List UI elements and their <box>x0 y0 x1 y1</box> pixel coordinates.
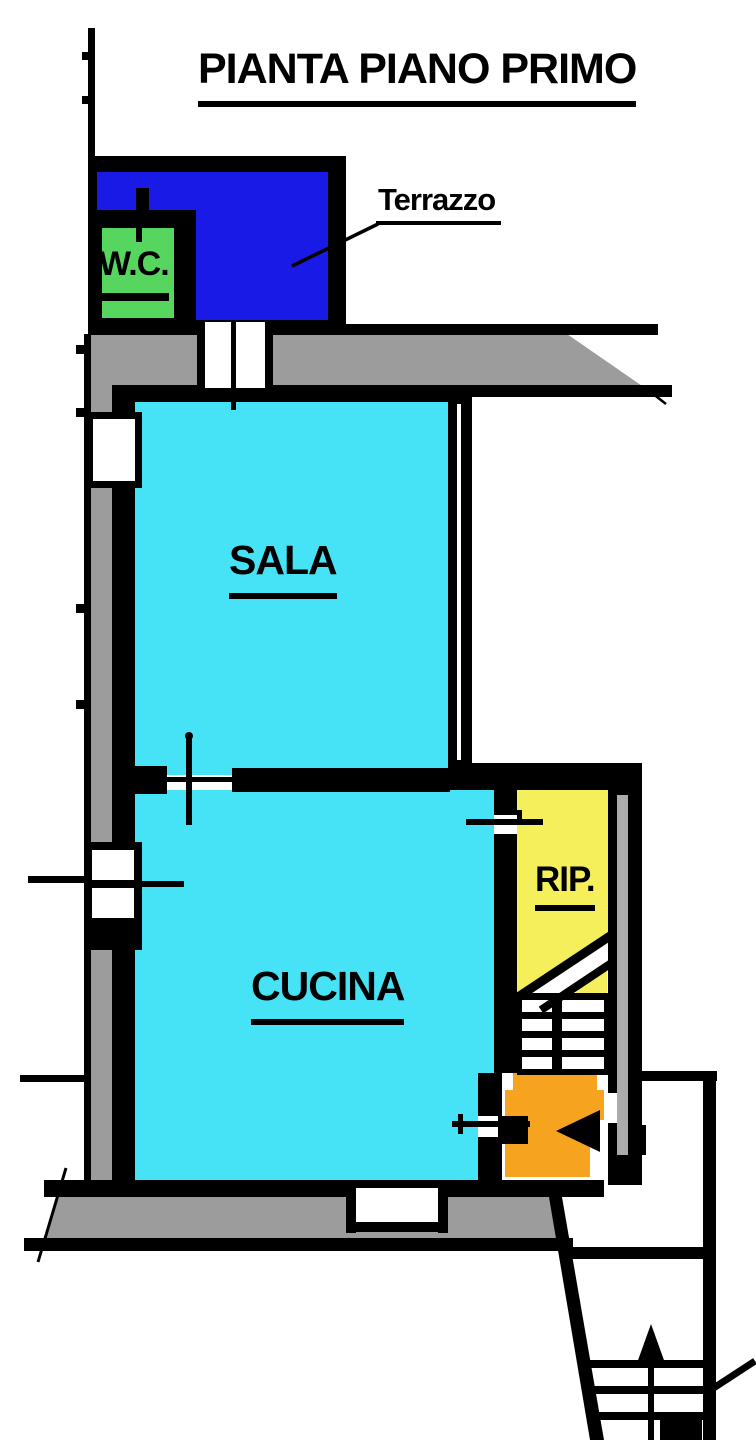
stair-step <box>562 1038 604 1050</box>
cucina-label: CUCINA <box>251 966 404 1025</box>
boundary-line-bottom <box>24 1238 573 1251</box>
stair-step-line <box>590 1360 703 1368</box>
terrazzo-label: Terrazzo <box>376 184 501 225</box>
door-frame <box>197 322 205 392</box>
left-dimension-line <box>20 1075 84 1082</box>
wall-tick <box>76 604 84 613</box>
partition-wall <box>232 768 450 792</box>
door-frame <box>265 322 273 392</box>
external-wall-slanted <box>549 1197 604 1440</box>
stair-step <box>562 1057 604 1069</box>
sala-right-wall-gap <box>457 404 461 760</box>
landing-notch <box>498 1116 528 1144</box>
stair-landing-block <box>660 1417 702 1440</box>
stair-step-line <box>594 1386 703 1394</box>
door-threshold <box>346 1222 448 1232</box>
wc-wall-right <box>174 210 196 334</box>
external-stairs <box>590 1324 703 1440</box>
corridor-masonry <box>96 334 648 390</box>
corridor-wall-top <box>88 324 658 335</box>
bottom-band-masonry <box>44 1197 568 1245</box>
rip-wall-left <box>494 763 517 1073</box>
floor-plan: PIANTA PIANO PRIMO Terrazzo W.C. SALA CU… <box>0 0 756 1440</box>
external-wall-mid-line <box>560 1247 710 1259</box>
door-hinge <box>185 732 193 740</box>
door-tick <box>458 1114 463 1134</box>
wc-wall-notch <box>136 188 149 212</box>
window-sill-line-right <box>142 881 184 887</box>
external-wall-top-line <box>640 1071 717 1081</box>
wc-wall-tick <box>136 228 142 242</box>
wall-tick <box>76 700 84 709</box>
wc-label: W.C. <box>99 247 169 301</box>
partition-stub <box>112 766 167 794</box>
bottom-door-opening <box>356 1188 438 1224</box>
boundary-line-top-left <box>88 28 95 160</box>
wall-tick <box>76 408 84 417</box>
wall-tick <box>82 52 88 60</box>
stair-wall-masonry-strip <box>617 795 628 1155</box>
door-leaf-symbol <box>231 322 236 410</box>
cucina-window-pane <box>92 888 134 918</box>
stair-step <box>562 1000 604 1012</box>
sala-wall-top <box>112 385 472 402</box>
stair-step <box>522 1057 552 1069</box>
wall-tick <box>82 96 88 104</box>
stair-step <box>522 1038 552 1050</box>
stair-step <box>562 1019 604 1031</box>
rip-label: RIP. <box>535 862 595 911</box>
sala-label: SALA <box>229 540 337 599</box>
door-line <box>466 819 543 825</box>
cucina-wall-bottom <box>44 1180 604 1197</box>
door-threshold <box>160 777 234 782</box>
door-tick <box>517 810 522 822</box>
plan-title: PIANTA PIANO PRIMO <box>198 48 636 107</box>
sala-window-pane <box>93 419 135 481</box>
stair-step <box>522 1019 552 1031</box>
door-leaf-symbol <box>186 735 192 825</box>
wall-tick <box>76 345 84 354</box>
cucina-window-pane <box>92 850 134 880</box>
window-sill-line-left <box>28 876 86 883</box>
terrazzo-wall-top <box>88 156 346 172</box>
corridor-wall-bottom-ext <box>460 385 672 397</box>
